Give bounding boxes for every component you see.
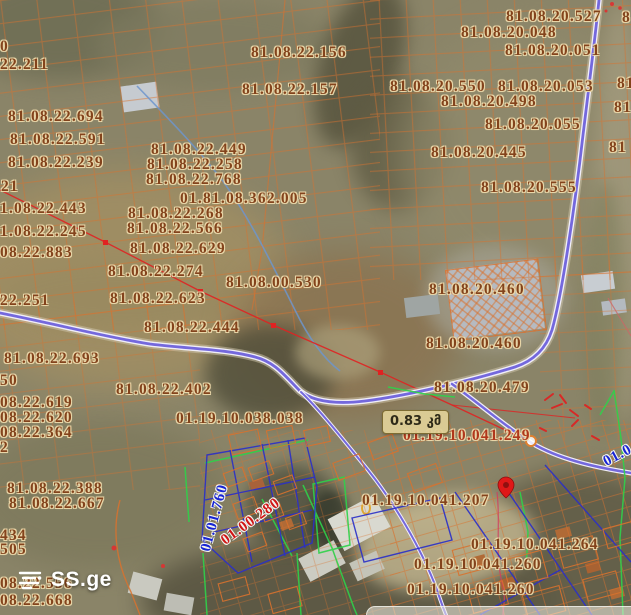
parcel-label: 81.08.22.156: [251, 45, 347, 61]
distance-value: 0.83 კმ: [390, 414, 441, 429]
parcel-label: 81.08.20.445: [431, 145, 527, 161]
parcel-label: 01.19.10.041.260: [407, 582, 535, 598]
watermark-logo: SS.ge: [16, 566, 112, 592]
parcel-label: 1.08.22.245: [0, 224, 87, 240]
parcel-label: 22.251: [0, 293, 50, 309]
parcel-label: 81.08.00.530: [226, 275, 322, 291]
parcel-label: 81.08.20.048: [461, 25, 557, 41]
parcel-label: 81.08.20.555: [481, 180, 577, 196]
parcel-label: 81: [614, 100, 631, 116]
parcel-label: 81: [609, 140, 627, 156]
parcel-label: 81.08.20.527: [506, 9, 602, 25]
parcel-label: 81.08.22.693: [4, 351, 100, 367]
parcel-label: 81.08.20.479: [434, 380, 530, 396]
ssge-lines-icon: [16, 566, 44, 592]
parcel-label: 08.22.883: [0, 245, 73, 261]
parcel-label: 81.08.22.694: [8, 109, 104, 125]
distance-tooltip: 0.83 კმ: [382, 410, 449, 434]
parcel-label: 81.08.22.239: [8, 155, 104, 171]
street-label: 01.00.280: [219, 496, 284, 549]
parcel-label: 81.08.22.623: [110, 291, 206, 307]
parcel-label: 505: [0, 542, 27, 558]
map-canvas[interactable]: 81.08.20.52781.08.20.04881.08.20.05181.0…: [0, 0, 631, 615]
parcel-label: 81.08.22.667: [9, 496, 105, 512]
parcel-label: 08.22.364: [0, 425, 73, 441]
parcel-label: 21: [1, 179, 19, 195]
parcel-label: 81.08.22.402: [116, 382, 212, 398]
parcel-label: 81.08.22.629: [130, 241, 226, 257]
parcel-label: 0: [0, 39, 9, 55]
parcel-label: 81.08.22.157: [242, 82, 338, 98]
parcel-label: 81: [617, 76, 631, 92]
parcel-label: 81.08.20.460: [429, 282, 525, 298]
parcel-label: 81.08.22.768: [146, 172, 242, 188]
labels-layer: 81.08.20.52781.08.20.04881.08.20.05181.0…: [0, 0, 631, 615]
parcel-label: 2: [0, 440, 9, 456]
bottom-bar-partial[interactable]: [366, 606, 631, 615]
watermark-brand-text: SS.ge: [51, 569, 112, 590]
street-label: 01.0: [601, 442, 631, 469]
parcel-label: 01.19.10.041.260: [414, 557, 542, 573]
parcel-label: 01.19.10.041.264: [471, 537, 599, 553]
parcel-label: 01.19.10.038.038: [176, 411, 304, 427]
parcel-label: 22.211: [0, 57, 49, 73]
parcel-label: 8: [622, 10, 631, 26]
parcel-label: 81.08.20.498: [441, 94, 537, 110]
parcel-label: 81.08.20.051: [505, 43, 601, 59]
parcel-label: 1.08.22.443: [0, 201, 87, 217]
parcel-label: 81.08.22.591: [10, 132, 106, 148]
parcel-label: 50: [0, 373, 18, 389]
parcel-label: 01.19.10.041.207: [362, 493, 490, 509]
parcel-label: 08.22.668: [0, 593, 73, 609]
parcel-label: 81.08.22.274: [108, 264, 204, 280]
parcel-label: 81.08.20.055: [485, 117, 581, 133]
parcel-label: 81.08.22.444: [144, 320, 240, 336]
parcel-label: 81.08.20.460: [426, 336, 522, 352]
parcel-label: 81.08.22.566: [127, 221, 223, 237]
